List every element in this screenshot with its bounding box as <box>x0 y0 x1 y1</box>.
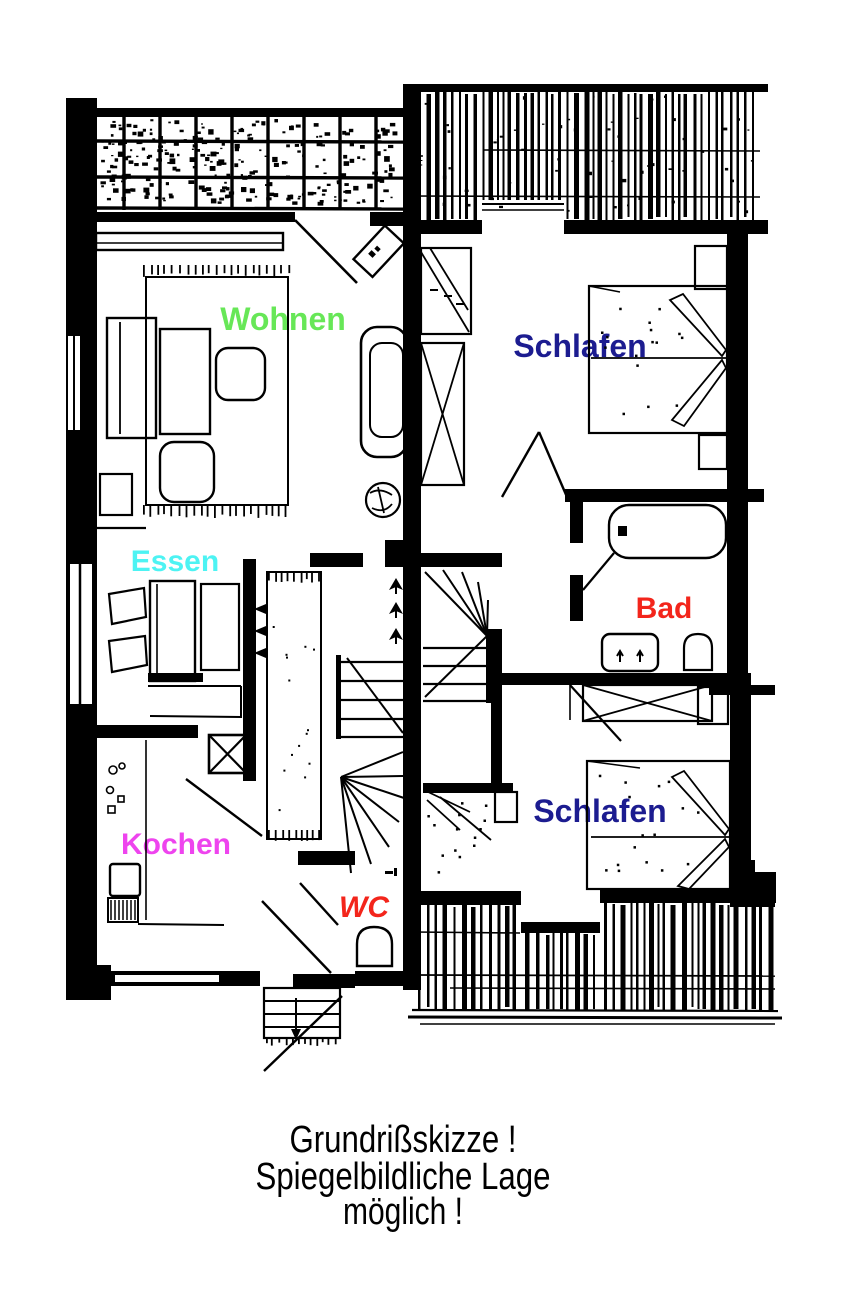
svg-text:Schlafen: Schlafen <box>533 793 666 829</box>
svg-text:Bad: Bad <box>636 592 693 625</box>
svg-text:Wohnen: Wohnen <box>220 301 346 337</box>
svg-text:WC: WC <box>339 891 390 924</box>
svg-text:F: F <box>415 157 423 172</box>
svg-text:Grundrißskizze !: Grundrißskizze ! <box>290 1119 517 1161</box>
svg-text:Essen: Essen <box>131 545 219 578</box>
svg-text:möglich !: möglich ! <box>343 1191 463 1233</box>
svg-text:Kochen: Kochen <box>121 828 231 861</box>
